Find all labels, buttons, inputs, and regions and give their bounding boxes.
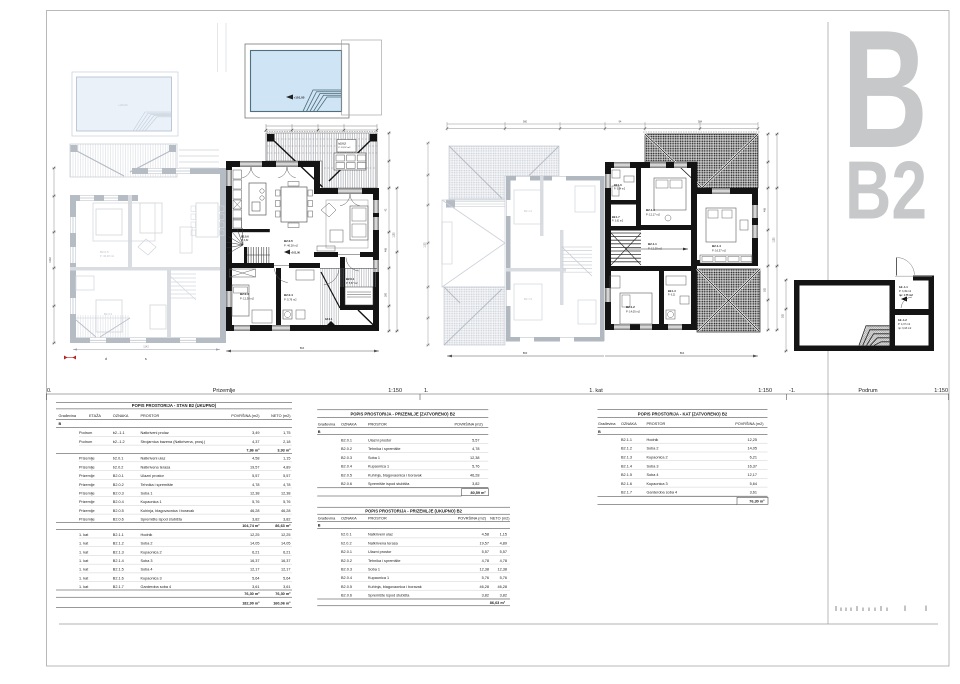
svg-text:P: 16,37 m2: P: 16,37 m2: [712, 249, 727, 253]
svg-text:1. kat: 1. kat: [79, 585, 89, 589]
svg-text:12,17: 12,17: [747, 473, 757, 477]
svg-text:1102: 1102: [773, 237, 776, 243]
svg-text:Ulazni prostor: Ulazni prostor: [368, 550, 392, 554]
svg-text:5,64: 5,64: [252, 576, 259, 580]
svg-text:76,30 m²: 76,30 m²: [749, 500, 765, 504]
svg-text:B2.0.6: B2.0.6: [341, 594, 352, 598]
svg-text:B2.1.4: B2.1.4: [712, 244, 721, 248]
svg-text:Prizemlje: Prizemlje: [79, 474, 95, 478]
svg-text:3,49: 3,49: [252, 431, 259, 435]
svg-text:POVRŠINA (m2): POVRŠINA (m2): [231, 413, 260, 418]
svg-text:Garderoba soba 4: Garderoba soba 4: [647, 491, 678, 495]
svg-text:OZNAKA: OZNAKA: [113, 414, 129, 418]
svg-text:5,76: 5,76: [252, 500, 259, 504]
svg-text:PROSTOR: PROSTOR: [141, 414, 160, 418]
svg-text:3,61: 3,61: [750, 491, 757, 495]
svg-text:b2.0.1: b2.0.1: [341, 533, 352, 537]
svg-text:12,25: 12,25: [747, 438, 757, 442]
svg-text:Prizemlje: Prizemlje: [79, 457, 95, 461]
svg-text:ETAŽA: ETAŽA: [89, 413, 101, 418]
svg-text:46,28: 46,28: [479, 585, 489, 589]
svg-text:4,78: 4,78: [482, 559, 489, 563]
svg-text:B2.1.5: B2.1.5: [621, 473, 632, 477]
svg-text:5,76: 5,76: [500, 576, 507, 580]
svg-text:B2.1.2: B2.1.2: [524, 209, 533, 213]
svg-text:Soba 2: Soba 2: [647, 447, 659, 451]
svg-text:P: 12,25 m2: P: 12,25 m2: [648, 247, 663, 251]
svg-text:B: B: [318, 524, 321, 528]
svg-text:302: 302: [764, 287, 767, 292]
svg-text:Soba 4: Soba 4: [647, 473, 659, 477]
svg-text:5,57: 5,57: [283, 474, 290, 478]
svg-text:4,78: 4,78: [283, 483, 290, 487]
svg-text:P: 12,17 m2: P: 12,17 m2: [646, 213, 661, 217]
svg-text:Tehnika i spremište: Tehnika i spremište: [368, 447, 401, 451]
svg-text:B2.1.6: B2.1.6: [621, 482, 632, 486]
svg-text:Tehnika i spremište: Tehnika i spremište: [141, 483, 174, 487]
svg-text:Natkrivena terasa: Natkrivena terasa: [141, 465, 172, 469]
svg-text:Građevina: Građevina: [59, 414, 77, 418]
svg-text:B2.0.4: B2.0.4: [284, 293, 293, 297]
svg-text:POPIS PROSTORIJA - PRIZEMLJE: POPIS PROSTORIJA - PRIZEMLJE (ZATVORENO)…: [350, 412, 455, 417]
svg-text:NETO (m2): NETO (m2): [271, 414, 291, 418]
svg-text:Hodnik: Hodnik: [141, 533, 153, 537]
svg-text:B2.1.3: B2.1.3: [646, 208, 655, 212]
svg-text:Spremište ispod stubišta: Spremište ispod stubišta: [368, 594, 410, 598]
svg-text:b2.0.1: b2.0.1: [113, 457, 124, 461]
svg-text:POVRŠINA (m2): POVRŠINA (m2): [735, 421, 764, 426]
svg-text:Građevina: Građevina: [318, 516, 336, 520]
svg-text:12,25: 12,25: [281, 533, 291, 537]
svg-text:B2.0.1: B2.0.1: [341, 550, 352, 554]
svg-text:P: 46,28 m2: P: 46,28 m2: [100, 254, 115, 258]
svg-text:2,18: 2,18: [283, 440, 290, 444]
svg-text:4,58: 4,58: [482, 533, 489, 537]
svg-text:Soba 2: Soba 2: [141, 542, 153, 546]
svg-text:P: 5,76 m2: P: 5,76 m2: [284, 298, 297, 302]
svg-text:4,78: 4,78: [500, 559, 507, 563]
svg-text:160,06 m²: 160,06 m²: [273, 601, 291, 605]
svg-text:302: 302: [782, 313, 785, 318]
svg-text:Tehnika i spremište: Tehnika i spremište: [368, 559, 401, 563]
svg-text:B2.0.3: B2.0.3: [240, 292, 249, 296]
svg-text:Natkriveni ulaz: Natkriveni ulaz: [141, 457, 166, 461]
svg-text:P: 46,28 m2: P: 46,28 m2: [284, 244, 299, 248]
svg-text:5,57: 5,57: [472, 438, 479, 442]
svg-text:5,76: 5,76: [472, 465, 479, 469]
svg-text:5,64: 5,64: [750, 482, 757, 486]
svg-text:PROSTOR: PROSTOR: [368, 516, 387, 520]
svg-text:Kuhinja, blagovaonica i borava: Kuhinja, blagovaonica i boravak: [141, 509, 195, 513]
svg-text:14,05: 14,05: [250, 542, 260, 546]
svg-text:d: d: [105, 357, 107, 361]
svg-text:5,76: 5,76: [283, 500, 290, 504]
svg-text:6,21: 6,21: [252, 550, 259, 554]
svg-text:Strojarnica bazena (Natkrivena: Strojarnica bazena (Natkrivena, prosj.): [141, 440, 207, 444]
svg-text:B2.1.1: B2.1.1: [113, 533, 124, 537]
svg-text:B2.0.1: B2.0.1: [113, 474, 124, 478]
svg-text:1. kat: 1. kat: [79, 568, 89, 572]
svg-text:19,57: 19,57: [250, 465, 260, 469]
svg-text:1. kat: 1. kat: [79, 542, 89, 546]
svg-text:Soba 3: Soba 3: [647, 464, 659, 468]
svg-text:POPIS PROSTORIJA - KAT (ZATVO: POPIS PROSTORIJA - KAT (ZATVORENO) B2: [638, 412, 728, 417]
svg-text:3,82: 3,82: [500, 594, 507, 598]
svg-text:46,28: 46,28: [470, 473, 480, 477]
svg-text:Kupaonica 3: Kupaonica 3: [647, 482, 668, 486]
svg-text:1. kat: 1. kat: [79, 550, 89, 554]
svg-text:b2.-1.2: b2.-1.2: [113, 440, 125, 444]
svg-text:3,61: 3,61: [283, 585, 290, 589]
svg-text:PROSTOR: PROSTOR: [647, 422, 666, 426]
svg-text:B2.1.6: B2.1.6: [113, 576, 124, 580]
svg-text:Prizemlje: Prizemlje: [79, 509, 95, 513]
svg-text:390: 390: [385, 292, 388, 297]
svg-text:B2.0.3: B2.0.3: [341, 568, 352, 572]
svg-text:Podrum: Podrum: [79, 440, 92, 444]
svg-text:1:150: 1:150: [388, 388, 402, 394]
svg-text:B2.0.3: B2.0.3: [113, 492, 124, 496]
svg-text:B2.1.5: B2.1.5: [113, 568, 124, 572]
svg-text:Kupaonica 2: Kupaonica 2: [141, 550, 162, 554]
svg-text:P: 14,05 m2: P: 14,05 m2: [626, 310, 641, 314]
svg-text:Prizemlje: Prizemlje: [79, 518, 95, 522]
svg-text:B2.0.6: B2.0.6: [341, 482, 352, 486]
svg-text:3,82: 3,82: [472, 482, 479, 486]
svg-text:POVRŠINA (m2): POVRŠINA (m2): [458, 515, 487, 520]
svg-text:1:150: 1:150: [758, 388, 772, 394]
svg-text:P: 3,49 m2: P: 3,49 m2: [899, 290, 912, 293]
svg-text:12,38: 12,38: [281, 492, 291, 496]
svg-text:1. kat: 1. kat: [589, 388, 603, 394]
svg-text:+101,00: +101,00: [294, 96, 305, 100]
svg-text:np: 3,18 m2: np: 3,18 m2: [898, 327, 912, 330]
svg-text:1142: 1142: [143, 345, 149, 349]
svg-text:12,38: 12,38: [470, 456, 480, 460]
svg-text:B2.0.4: B2.0.4: [341, 576, 352, 580]
svg-text:POPIS PROSTORIJA - PRIZEMLJE: POPIS PROSTORIJA - PRIZEMLJE (UKUPNO) B2: [365, 508, 462, 513]
svg-text:1.: 1.: [424, 388, 429, 394]
svg-text:B2.0.6: B2.0.6: [113, 518, 124, 522]
svg-text:B2.0.2: B2.0.2: [341, 447, 352, 451]
svg-text:Soba 3: Soba 3: [141, 559, 153, 563]
svg-text:B2.0.2: B2.0.2: [341, 559, 352, 563]
svg-text:5,57: 5,57: [500, 550, 507, 554]
svg-text:Kuhinja, blagovaonica i borava: Kuhinja, blagovaonica i boravak: [368, 473, 422, 477]
svg-text:860: 860: [523, 351, 528, 355]
svg-text:12,38: 12,38: [497, 568, 507, 572]
svg-text:P: 6,21: P: 6,21: [668, 295, 676, 297]
svg-text:3,82: 3,82: [252, 518, 259, 522]
svg-text:OZNAKA: OZNAKA: [341, 516, 357, 520]
svg-text:B2.1.4: B2.1.4: [113, 559, 124, 563]
svg-text:Natkrivena terasa: Natkrivena terasa: [368, 541, 399, 545]
svg-text:b2.-1.2: b2.-1.2: [898, 318, 907, 322]
svg-text:B: B: [598, 430, 601, 434]
svg-text:B2.1.3: B2.1.3: [668, 289, 676, 293]
svg-text:Prizemlje: Prizemlje: [79, 500, 95, 504]
svg-text:B2.0.5: B2.0.5: [341, 585, 352, 589]
svg-text:-1.: -1.: [789, 388, 796, 394]
svg-text:14,05: 14,05: [747, 447, 757, 451]
svg-text:Ulazni prostor: Ulazni prostor: [141, 474, 165, 478]
svg-text:7,86 m²: 7,86 m²: [246, 448, 260, 452]
svg-text:1. kat: 1. kat: [79, 576, 89, 580]
svg-text:b2.0.1: b2.0.1: [325, 317, 333, 321]
svg-text:B2.0.4: B2.0.4: [341, 465, 352, 469]
svg-text:468: 468: [764, 207, 767, 212]
svg-text:Garderoba soba 4: Garderoba soba 4: [141, 585, 172, 589]
svg-text:B2.0.3: B2.0.3: [341, 456, 352, 460]
svg-text:Hodnik: Hodnik: [647, 438, 659, 442]
svg-text:+101,00: +101,00: [291, 251, 301, 255]
svg-text:560: 560: [523, 121, 528, 124]
svg-text:b2.-1.1: b2.-1.1: [899, 285, 908, 289]
svg-text:864: 864: [300, 346, 305, 350]
svg-text:b2.0.2: b2.0.2: [341, 541, 352, 545]
svg-text:B2.1.5: B2.1.5: [524, 297, 533, 301]
svg-text:B2.1.1: B2.1.1: [621, 438, 632, 442]
svg-text:3,82: 3,82: [283, 518, 290, 522]
svg-text:B2.1.3: B2.1.3: [621, 455, 632, 459]
svg-text:182,90 m²: 182,90 m²: [242, 601, 260, 605]
svg-text:14,05: 14,05: [281, 542, 291, 546]
svg-text:Kupaonica 3: Kupaonica 3: [141, 576, 162, 580]
svg-text:76,30 m²: 76,30 m²: [244, 592, 260, 596]
svg-text:b2.0.2: b2.0.2: [339, 142, 347, 146]
svg-text:Prizemlje: Prizemlje: [213, 388, 236, 394]
svg-text:Soba 4: Soba 4: [141, 568, 153, 572]
svg-text:12,17: 12,17: [281, 568, 291, 572]
svg-text:76,30 m²: 76,30 m²: [275, 592, 291, 596]
svg-text:B: B: [59, 422, 62, 426]
svg-text:Ulazni prostor: Ulazni prostor: [368, 438, 392, 442]
svg-text:Podrum: Podrum: [858, 388, 878, 394]
svg-text:P: 5,57 m2: P: 5,57 m2: [346, 282, 358, 285]
svg-text:Građevina: Građevina: [598, 422, 616, 426]
svg-text:1102: 1102: [393, 232, 396, 238]
svg-text:P: 3,61 m2: P: 3,61 m2: [612, 221, 624, 223]
svg-text:3,82: 3,82: [482, 594, 489, 598]
svg-text:1. kat: 1. kat: [79, 533, 89, 537]
svg-text:5,57: 5,57: [482, 550, 489, 554]
svg-text:B2.1.6: B2.1.6: [614, 183, 622, 187]
svg-text:12,38: 12,38: [250, 492, 260, 496]
svg-text:B2.0.5: B2.0.5: [341, 473, 352, 477]
svg-text:19,57: 19,57: [479, 541, 489, 545]
svg-text:4,58: 4,58: [252, 457, 259, 461]
svg-text:b2.0.2: b2.0.2: [113, 465, 124, 469]
svg-text:12,38: 12,38: [479, 568, 489, 572]
svg-text:B2: B2: [845, 144, 927, 237]
svg-text:Soba 1: Soba 1: [368, 456, 380, 460]
svg-text:B2.0.4: B2.0.4: [113, 500, 124, 504]
svg-text:P: 5,64 m2: P: 5,64 m2: [614, 189, 626, 191]
svg-text:6,21: 6,21: [750, 455, 757, 459]
svg-text:46,28: 46,28: [497, 585, 507, 589]
svg-text:86,63 m²: 86,63 m²: [275, 524, 291, 528]
svg-text:B2.1.1: B2.1.1: [648, 242, 657, 246]
svg-text:B2.0.2: B2.0.2: [113, 483, 124, 487]
svg-text:s: s: [145, 357, 147, 361]
svg-text:0.: 0.: [47, 388, 52, 394]
svg-text:POPIS PROSTORIJA - STAN B2 (U: POPIS PROSTORIJA - STAN B2 (UKUPNO): [132, 403, 217, 408]
svg-text:Podrum: Podrum: [79, 431, 92, 435]
svg-text:Kupaonica 2: Kupaonica 2: [647, 455, 668, 459]
svg-text:PROSTOR: PROSTOR: [368, 422, 387, 426]
svg-text:NETO (m2): NETO (m2): [490, 516, 510, 520]
svg-text:5,64: 5,64: [283, 576, 290, 580]
svg-text:1102: 1102: [48, 257, 52, 263]
svg-text:B2.0.5: B2.0.5: [284, 239, 293, 243]
svg-text:3,93 m²: 3,93 m²: [277, 448, 291, 452]
svg-text:OZNAKA: OZNAKA: [341, 422, 357, 426]
svg-text:Spremište ispod stubišta: Spremište ispod stubišta: [141, 518, 183, 522]
svg-text:104,74 m²: 104,74 m²: [242, 524, 260, 528]
svg-text:6,21: 6,21: [283, 550, 290, 554]
svg-text:4,78: 4,78: [252, 483, 259, 487]
svg-text:B2.0.5: B2.0.5: [100, 250, 109, 254]
svg-text:1102: 1102: [424, 242, 427, 248]
svg-text:OZNAKA: OZNAKA: [621, 422, 637, 426]
svg-text:4,89: 4,89: [283, 465, 290, 469]
svg-text:B2.1.2: B2.1.2: [113, 542, 124, 546]
svg-text:4,37: 4,37: [252, 440, 259, 444]
svg-text:3,61: 3,61: [252, 585, 259, 589]
svg-text:+101,00: +101,00: [118, 103, 128, 107]
svg-text:86,63 m²: 86,63 m²: [490, 601, 506, 605]
svg-text:5,76: 5,76: [482, 576, 489, 580]
svg-text:B: B: [318, 430, 321, 434]
svg-text:B2.0.5: B2.0.5: [113, 509, 124, 513]
svg-text:P: 4,37 m2: P: 4,37 m2: [898, 323, 911, 326]
svg-text:B2.1.4: B2.1.4: [621, 464, 632, 468]
svg-text:46,28: 46,28: [250, 509, 260, 513]
svg-text:16,37: 16,37: [747, 464, 757, 468]
svg-text:468: 468: [385, 247, 388, 252]
svg-text:16,37: 16,37: [281, 559, 291, 563]
svg-text:Natkriveni ulaz: Natkriveni ulaz: [368, 533, 393, 537]
svg-text:P: 12,38 m2: P: 12,38 m2: [240, 297, 255, 301]
svg-text:B2.0.6: B2.0.6: [241, 235, 249, 239]
svg-text:1. kat: 1. kat: [79, 559, 89, 563]
svg-text:B2.1.2: B2.1.2: [626, 305, 635, 309]
svg-text:4,78: 4,78: [472, 447, 479, 451]
svg-text:1:150: 1:150: [934, 388, 948, 394]
svg-text:B2.0.1: B2.0.1: [346, 277, 355, 281]
svg-text:B2.1.7: B2.1.7: [612, 215, 620, 219]
svg-text:Prizemlje: Prizemlje: [79, 483, 95, 487]
svg-text:4,89: 4,89: [500, 541, 507, 545]
svg-text:12,25: 12,25: [250, 533, 260, 537]
svg-text:B2.1.2: B2.1.2: [621, 447, 632, 451]
svg-text:46,28: 46,28: [281, 509, 291, 513]
svg-text:1,75: 1,75: [283, 431, 290, 435]
svg-text:Građevina: Građevina: [318, 422, 336, 426]
svg-text:Kupaonica 1: Kupaonica 1: [141, 500, 162, 504]
svg-text:12,17: 12,17: [250, 568, 260, 572]
svg-text:Prizemlje: Prizemlje: [79, 492, 95, 496]
svg-text:Natkriveni prolaz: Natkriveni prolaz: [141, 431, 169, 435]
svg-text:B2.1.3: B2.1.3: [113, 550, 124, 554]
svg-text:1,15: 1,15: [500, 533, 507, 537]
svg-text:B2.0.1: B2.0.1: [341, 438, 352, 442]
svg-text:Kuhinja, blagovaonica i borava: Kuhinja, blagovaonica i boravak: [368, 585, 422, 589]
svg-text:Spremište ispod stubišta: Spremište ispod stubišta: [368, 482, 410, 486]
svg-text:5,57: 5,57: [252, 474, 259, 478]
svg-text:Soba 1: Soba 1: [141, 492, 153, 496]
svg-text:Kupaonica 1: Kupaonica 1: [368, 465, 389, 469]
svg-text:80,59 m²: 80,59 m²: [470, 491, 486, 495]
svg-text:B2.1.7: B2.1.7: [621, 491, 632, 495]
svg-text:Soba 1: Soba 1: [368, 568, 380, 572]
svg-text:Kupaonica 1: Kupaonica 1: [368, 576, 389, 580]
svg-text:P: 3,82: P: 3,82: [241, 240, 249, 242]
svg-text:864: 864: [680, 351, 685, 355]
svg-text:Prizemlje: Prizemlje: [79, 465, 95, 469]
svg-text:B2.1.7: B2.1.7: [113, 585, 124, 589]
svg-text:16,37: 16,37: [250, 559, 260, 563]
svg-text:POVRŠINA (m2): POVRŠINA (m2): [455, 421, 484, 426]
svg-text:np: 1,75 m2: np: 1,75 m2: [899, 294, 913, 297]
svg-text:b2.-1.1: b2.-1.1: [113, 431, 125, 435]
svg-text:P: 19,57 m2: P: 19,57 m2: [339, 147, 352, 149]
svg-text:584: 584: [698, 121, 703, 124]
svg-text:1,15: 1,15: [283, 457, 290, 461]
